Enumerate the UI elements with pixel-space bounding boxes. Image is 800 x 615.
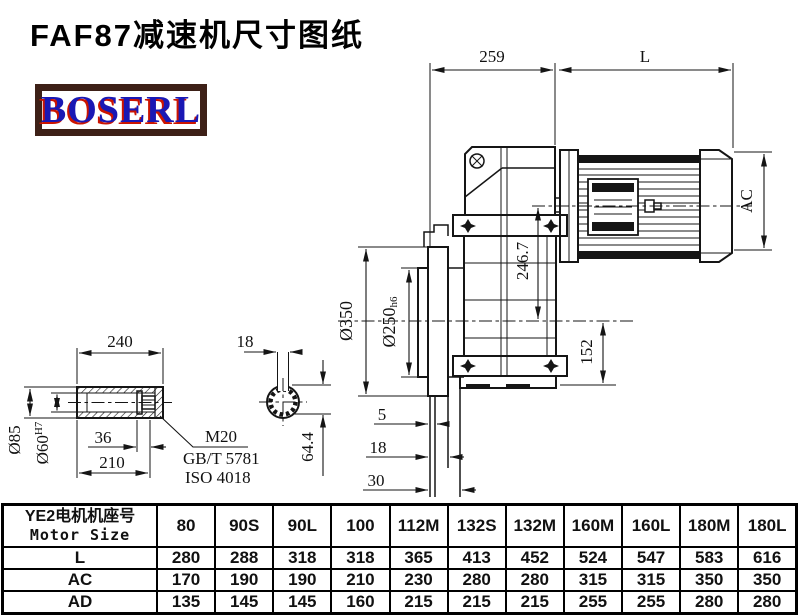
value-cell: 190 xyxy=(215,569,273,591)
value-cell: 215 xyxy=(390,591,448,614)
value-cell: 280 xyxy=(157,547,215,569)
page: { "title": "FAF87减速机尺寸图纸", "logo": { "te… xyxy=(0,0,800,614)
output-flange xyxy=(418,225,464,497)
dimension-drawing: 259 L AC 246.7 152 Ø350 Ø250h6 xyxy=(0,0,800,503)
value-cell: 616 xyxy=(738,547,796,569)
value-cell: 215 xyxy=(506,591,564,614)
dim-210-label: 210 xyxy=(99,453,125,472)
col-header: 90L xyxy=(273,505,331,547)
dim-AC-label: AC xyxy=(737,189,756,213)
std-iso-label: ISO 4018 xyxy=(185,468,251,487)
dim-5-label: 5 xyxy=(378,405,387,424)
table-row-AD: AD 135 145 145 160 215 215 215 255 255 2… xyxy=(3,591,797,614)
table-row-L: L 280 288 318 318 365 413 452 524 547 58… xyxy=(3,547,797,569)
dim-L-label: L xyxy=(640,47,650,66)
col-header: 112M xyxy=(390,505,448,547)
col-header: 160L xyxy=(622,505,680,547)
value-cell: 350 xyxy=(738,569,796,591)
header-cn: YE2电机机座号 xyxy=(4,508,156,526)
value-cell: 280 xyxy=(448,569,506,591)
col-header: 160M xyxy=(564,505,622,547)
motor-size-table: YE2电机机座号 Motor Size 80 90S 90L 100 112M … xyxy=(1,503,798,615)
std-gb-label: GB/T 5781 xyxy=(183,449,260,468)
col-header: 132M xyxy=(506,505,564,547)
bolt-diamond xyxy=(543,359,559,373)
value-cell: 547 xyxy=(622,547,680,569)
bolt-diamond xyxy=(460,219,476,233)
table-header-row: YE2电机机座号 Motor Size 80 90S 90L 100 112M … xyxy=(3,505,797,547)
bolt-diamond xyxy=(543,219,559,233)
bolt-symbol-top xyxy=(470,154,484,168)
value-cell: 583 xyxy=(680,547,738,569)
value-cell: 280 xyxy=(506,569,564,591)
value-cell: 524 xyxy=(564,547,622,569)
value-cell: 288 xyxy=(215,547,273,569)
dim-60h7-label: Ø60H7 xyxy=(33,421,52,464)
value-cell: 255 xyxy=(622,591,680,614)
col-header: 80 xyxy=(157,505,215,547)
dimensions-main: 259 L AC 246.7 152 Ø350 Ø250h6 xyxy=(336,47,772,490)
dim-240-label: 240 xyxy=(107,332,133,351)
value-cell: 280 xyxy=(738,591,796,614)
dimensions-shaft: 240 Ø85 Ø60H7 36 210 M20 GB/T 5781 ISO 4… xyxy=(5,332,260,487)
value-cell: 315 xyxy=(564,569,622,591)
value-cell: 170 xyxy=(157,569,215,591)
shaft-detail xyxy=(68,387,172,418)
value-cell: 350 xyxy=(680,569,738,591)
dim-259-label: 259 xyxy=(479,47,505,66)
value-cell: 318 xyxy=(273,547,331,569)
col-header: 180L xyxy=(738,505,796,547)
dim-250h6-label: Ø250h6 xyxy=(379,296,400,348)
col-header: 100 xyxy=(331,505,389,547)
dim-152-label: 152 xyxy=(577,339,596,365)
dim-key18-label: 18 xyxy=(237,332,254,351)
value-cell: 145 xyxy=(215,591,273,614)
value-cell: 365 xyxy=(390,547,448,569)
dim-85-label: Ø85 xyxy=(5,425,24,454)
dim-246-label: 246.7 xyxy=(513,241,532,280)
col-header: 180M xyxy=(680,505,738,547)
header-motor-size: YE2电机机座号 Motor Size xyxy=(3,505,158,547)
dim-30-label: 30 xyxy=(368,471,385,490)
value-cell: 135 xyxy=(157,591,215,614)
motor-nameplate xyxy=(588,179,638,235)
row-label: AC xyxy=(3,569,158,591)
dim-36-label: 36 xyxy=(95,428,112,447)
value-cell: 315 xyxy=(622,569,680,591)
value-cell: 318 xyxy=(331,547,389,569)
value-cell: 452 xyxy=(506,547,564,569)
value-cell: 280 xyxy=(680,591,738,614)
gearbox-housing xyxy=(453,147,567,389)
dim-18-label: 18 xyxy=(370,438,387,457)
value-cell: 145 xyxy=(273,591,331,614)
value-cell: 210 xyxy=(331,569,389,591)
row-label: AD xyxy=(3,591,158,614)
col-header: 132S xyxy=(448,505,506,547)
value-cell: 230 xyxy=(390,569,448,591)
value-cell: 413 xyxy=(448,547,506,569)
value-cell: 160 xyxy=(331,591,389,614)
header-en: Motor Size xyxy=(4,527,156,544)
table-row-AC: AC 170 190 190 210 230 280 280 315 315 3… xyxy=(3,569,797,591)
value-cell: 215 xyxy=(448,591,506,614)
col-header: 90S xyxy=(215,505,273,547)
value-cell: 255 xyxy=(564,591,622,614)
dim-350-label: Ø350 xyxy=(336,301,356,341)
value-cell: 190 xyxy=(273,569,331,591)
dim-644-label: 64.4 xyxy=(298,432,317,462)
bolt-spec-label: M20 xyxy=(205,427,237,446)
row-label: L xyxy=(3,547,158,569)
bolt-diamond xyxy=(460,359,476,373)
